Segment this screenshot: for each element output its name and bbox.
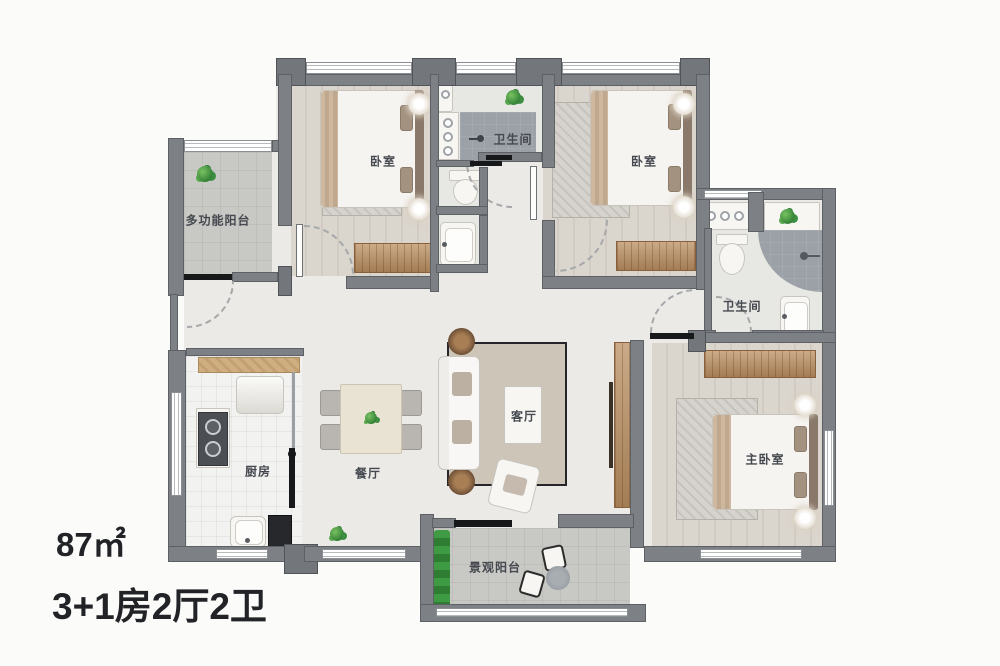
toilet-nook-door <box>470 161 502 166</box>
nightstand-lamp <box>794 394 816 416</box>
bed-pillow <box>400 167 413 193</box>
wall-segment <box>284 74 710 86</box>
window <box>456 62 516 74</box>
bedroom2-label: 卧室 <box>631 153 657 170</box>
bed-headboard <box>809 414 818 510</box>
wall-pier <box>516 58 562 86</box>
nightstand-lamp <box>673 196 695 218</box>
dining-chair <box>320 424 342 450</box>
potted-plant <box>780 209 795 224</box>
wall-segment <box>232 272 278 282</box>
wall-segment <box>542 276 700 289</box>
kitchen-counter <box>198 357 300 373</box>
vanity-knob <box>443 118 453 128</box>
vanity-knob <box>720 211 730 221</box>
wall-segment <box>436 160 474 167</box>
dining-centerpiece <box>365 412 377 424</box>
wall-segment <box>430 74 439 292</box>
wall-segment <box>479 215 488 270</box>
wall-segment <box>558 514 634 528</box>
bedroom1-label: 卧室 <box>370 153 396 170</box>
tv-screen <box>609 382 613 468</box>
wall-segment <box>186 348 304 356</box>
nightstand-lamp <box>794 507 816 529</box>
balcony-door <box>184 274 232 280</box>
balcony-greenery <box>434 530 450 608</box>
faucet-icon <box>245 538 250 543</box>
shower-icon-arm <box>469 138 478 140</box>
door-swing-arc <box>187 281 234 328</box>
wall-segment <box>436 264 488 273</box>
bedroom1-wardrobe <box>354 243 434 273</box>
sofa-cushion <box>452 372 472 396</box>
window <box>184 140 272 152</box>
area-text: 87㎡ <box>56 518 126 566</box>
floorplan-canvas: 多功能阳台 卧室 卫生间 卧室 卫生间 厨房 餐厅 客厅 主卧室 景观阳台 87… <box>0 0 1000 666</box>
water-heater-knob <box>441 90 450 99</box>
master-wardrobe <box>704 350 816 378</box>
wall-segment <box>346 276 438 289</box>
door-knob-icon <box>288 450 296 458</box>
dining-chair <box>400 424 422 450</box>
bed-pillow <box>794 472 807 498</box>
bath-top-label: 卫生间 <box>493 131 532 148</box>
faucet-icon <box>442 242 447 247</box>
bed-foot <box>591 91 608 205</box>
wall-segment <box>432 518 456 528</box>
vanity-knob <box>734 211 744 221</box>
window <box>562 62 680 74</box>
window <box>306 62 412 74</box>
nightstand-lamp <box>408 93 430 115</box>
bed-pillow <box>668 166 681 192</box>
bath-top-door <box>486 155 512 160</box>
window <box>216 549 268 559</box>
window <box>700 549 802 559</box>
floor-plant <box>330 527 344 541</box>
door-swing-arc <box>304 225 354 275</box>
bed-pillow <box>794 426 807 452</box>
master-bedroom-label: 主卧室 <box>745 451 784 468</box>
wall-segment <box>748 192 764 232</box>
window <box>171 392 182 496</box>
bedroom1-door <box>296 224 303 277</box>
bath-top-sink-basin <box>445 228 473 262</box>
stove-burner <box>205 419 221 435</box>
layout-text: 3+1房2厅2卫 <box>52 576 267 630</box>
bedroom2-door <box>530 166 537 220</box>
side-table-round <box>448 328 475 355</box>
balcony-sliding-door <box>454 520 512 527</box>
wall-segment <box>168 138 184 296</box>
bed-foot <box>713 415 731 509</box>
nightstand-lamp <box>408 198 430 220</box>
kitchen-label: 厨房 <box>245 463 271 480</box>
potted-plant <box>506 90 521 105</box>
shower-arm-icon <box>806 255 820 257</box>
wall-segment <box>692 332 836 343</box>
door-swing-arc <box>650 289 696 333</box>
dining-chair <box>320 390 342 416</box>
wall-segment <box>704 228 712 334</box>
door-swing-arc <box>556 220 608 272</box>
bed-foot <box>321 91 338 207</box>
vanity-knob <box>443 132 453 142</box>
window <box>824 430 834 506</box>
window <box>322 549 406 559</box>
sofa-cushion <box>452 420 472 444</box>
balcony-table <box>546 566 570 590</box>
nightstand-lamp <box>673 93 695 115</box>
shower-icon <box>477 135 484 142</box>
potted-plant <box>197 166 213 182</box>
bedroom2-wardrobe <box>616 241 696 271</box>
window <box>436 608 628 617</box>
side-table-round <box>448 468 475 495</box>
wall-pier <box>278 266 292 296</box>
wall-segment <box>278 74 292 226</box>
fridge <box>236 376 284 414</box>
stove-burner <box>205 441 221 457</box>
multi-balcony-label: 多功能阳台 <box>185 212 250 229</box>
bath-right-label: 卫生间 <box>722 298 761 315</box>
hallway-door <box>650 333 694 339</box>
kitchen-partition <box>292 372 295 450</box>
wall-segment <box>436 206 488 215</box>
living-label: 客厅 <box>511 408 537 425</box>
dining-label: 餐厅 <box>355 465 381 482</box>
door-swing-arc <box>466 162 512 208</box>
faucet-icon <box>782 314 787 319</box>
vanity-knob <box>443 146 453 156</box>
dining-chair <box>400 390 422 416</box>
view-balcony-label: 景观阳台 <box>469 559 521 576</box>
wall-segment <box>542 74 555 168</box>
wall-segment <box>170 294 178 352</box>
